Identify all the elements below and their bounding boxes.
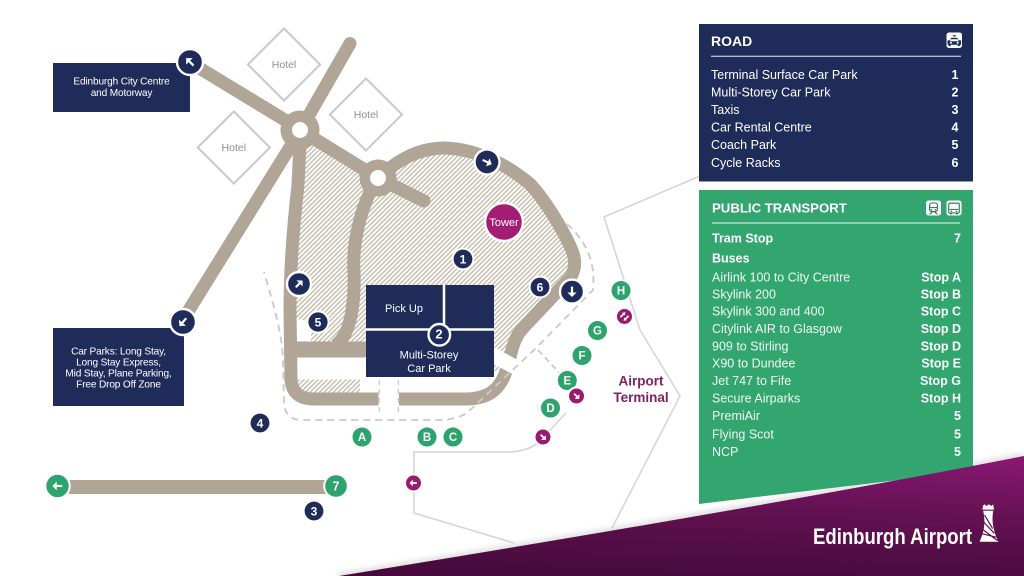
svg-text:D: D — [546, 403, 554, 415]
svg-text:5: 5 — [954, 409, 961, 423]
svg-text:5: 5 — [952, 138, 959, 152]
svg-text:A: A — [358, 432, 366, 444]
svg-text:Stop B: Stop B — [921, 288, 961, 302]
svg-text:4: 4 — [952, 121, 959, 135]
svg-text:2: 2 — [952, 85, 959, 99]
svg-text:7: 7 — [333, 480, 340, 494]
svg-text:Multi-Storey Car Park: Multi-Storey Car Park — [711, 85, 831, 99]
svg-text:Free Drop Off Zone: Free Drop Off Zone — [76, 379, 161, 390]
svg-text:Terminal: Terminal — [613, 390, 668, 405]
svg-text:7: 7 — [954, 232, 961, 246]
svg-text:Citylink AIR to Glasgow: Citylink AIR to Glasgow — [712, 322, 843, 336]
svg-text:Stop A: Stop A — [921, 271, 961, 285]
svg-text:Secure Airparks: Secure Airparks — [712, 392, 800, 406]
svg-text:Car Parks: Long Stay,: Car Parks: Long Stay, — [71, 347, 166, 358]
svg-text:Airlink 100 to City Centre: Airlink 100 to City Centre — [712, 271, 850, 285]
svg-text:Edinburgh Airport: Edinburgh Airport — [813, 524, 973, 549]
svg-text:Skylink 300 and 400: Skylink 300 and 400 — [712, 304, 825, 318]
svg-text:6: 6 — [537, 280, 544, 294]
svg-text:5: 5 — [954, 427, 961, 441]
svg-text:Hotel: Hotel — [272, 59, 297, 71]
svg-text:5: 5 — [315, 315, 322, 329]
svg-text:and Motorway: and Motorway — [91, 88, 154, 99]
svg-text:Edinburgh City Centre: Edinburgh City Centre — [73, 77, 170, 88]
svg-text:Hotel: Hotel — [222, 142, 247, 154]
svg-text:Long Stay Express,: Long Stay Express, — [76, 358, 161, 369]
svg-text:Skylink 200: Skylink 200 — [712, 288, 776, 302]
svg-text:Multi-Storey: Multi-Storey — [400, 350, 459, 362]
svg-text:4: 4 — [257, 416, 264, 430]
svg-text:Car Park: Car Park — [407, 363, 451, 375]
svg-text:Tram Stop: Tram Stop — [712, 232, 773, 246]
svg-text:Terminal Surface Car Park: Terminal Surface Car Park — [711, 68, 858, 82]
svg-text:E: E — [563, 376, 571, 388]
svg-text:Stop C: Stop C — [921, 304, 961, 318]
svg-text:Buses: Buses — [712, 252, 750, 266]
svg-text:Hotel: Hotel — [354, 109, 379, 121]
svg-text:Stop G: Stop G — [920, 374, 961, 388]
svg-text:Jet 747 to Fife: Jet 747 to Fife — [712, 374, 791, 388]
svg-text:F: F — [578, 351, 585, 363]
svg-text:909 to Stirling: 909 to Stirling — [712, 339, 788, 353]
svg-text:ROAD: ROAD — [711, 33, 752, 49]
svg-text:Pick Up: Pick Up — [385, 303, 423, 315]
svg-text:Airport: Airport — [619, 374, 665, 389]
svg-text:G: G — [593, 326, 602, 338]
svg-text:2: 2 — [435, 327, 442, 342]
svg-text:3: 3 — [311, 504, 318, 518]
svg-text:Stop E: Stop E — [921, 357, 961, 371]
svg-text:Stop H: Stop H — [921, 392, 961, 406]
svg-text:6: 6 — [952, 156, 959, 170]
svg-text:3: 3 — [952, 103, 959, 117]
svg-text:Stop D: Stop D — [921, 339, 961, 353]
svg-text:Coach Park: Coach Park — [711, 138, 777, 152]
svg-text:Stop D: Stop D — [921, 322, 961, 336]
svg-text:Flying Scot: Flying Scot — [712, 427, 774, 441]
svg-text:H: H — [617, 286, 625, 298]
svg-text:PremiAir: PremiAir — [712, 409, 760, 423]
svg-text:5: 5 — [954, 445, 961, 459]
svg-text:NCP: NCP — [712, 445, 738, 459]
svg-text:Mid Stay, Plane Parking,: Mid Stay, Plane Parking, — [65, 369, 171, 380]
svg-text:PUBLIC TRANSPORT: PUBLIC TRANSPORT — [712, 201, 847, 216]
svg-text:Tower: Tower — [489, 217, 519, 229]
svg-text:B: B — [423, 432, 431, 444]
svg-text:Taxis: Taxis — [711, 103, 739, 117]
svg-text:C: C — [449, 432, 457, 444]
svg-text:Cycle Racks: Cycle Racks — [711, 156, 780, 170]
svg-text:Car Rental Centre: Car Rental Centre — [711, 121, 812, 135]
svg-text:1: 1 — [952, 68, 959, 82]
svg-text:X90 to Dundee: X90 to Dundee — [712, 357, 795, 371]
svg-text:1: 1 — [460, 252, 467, 266]
